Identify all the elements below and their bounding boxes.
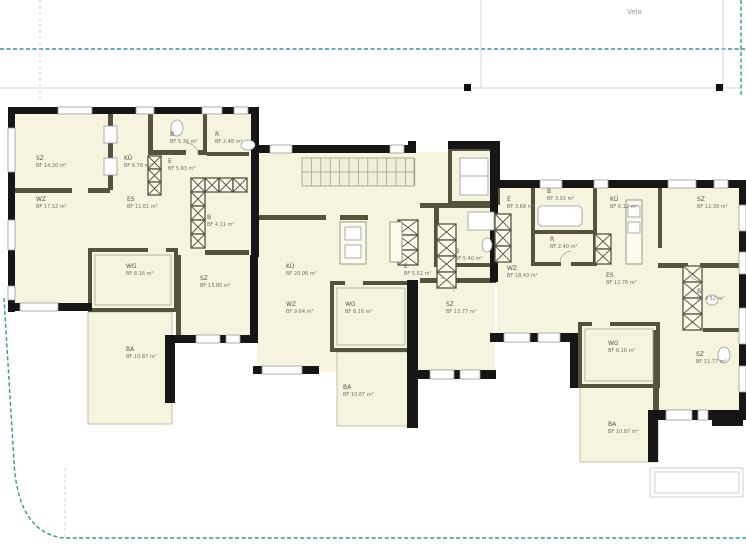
- floor-plan-canvas: SZBF 14.20 m²WZBF 17.52 m²KÜBF 6.78 m²BB…: [0, 0, 746, 550]
- terrace-outline: [650, 468, 743, 497]
- velo-site-label: Velo: [627, 8, 642, 16]
- stair: [302, 158, 415, 186]
- canopy-posts: [464, 84, 723, 91]
- floor-plan-drawing: [0, 0, 746, 550]
